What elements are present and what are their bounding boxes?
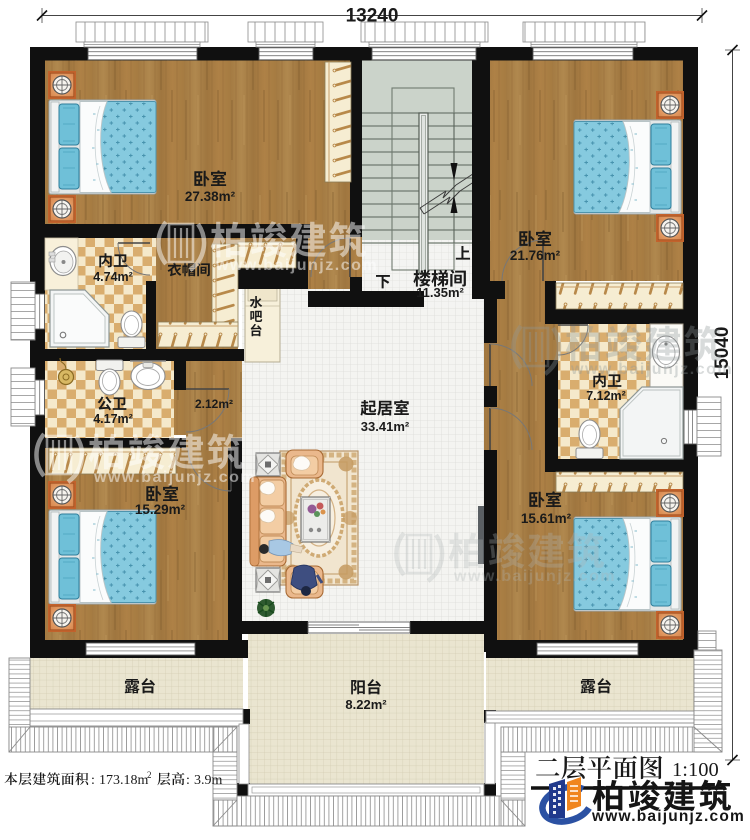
svg-text:4.17m²: 4.17m² — [93, 412, 133, 426]
svg-text:4.74m²: 4.74m² — [93, 270, 133, 284]
svg-text:11.35m²: 11.35m² — [416, 285, 464, 300]
svg-text:21.76m²: 21.76m² — [510, 248, 561, 263]
svg-text:15.61m²: 15.61m² — [521, 511, 572, 526]
svg-text:1:100: 1:100 — [672, 759, 719, 781]
svg-text:www.baijunjz.com: www.baijunjz.com — [453, 568, 616, 585]
svg-text:33.41m²: 33.41m² — [361, 419, 410, 434]
svg-text:www.baijunjz.com: www.baijunjz.com — [591, 808, 745, 825]
svg-text::: : — [186, 773, 190, 788]
svg-text:2.12m²: 2.12m² — [195, 397, 233, 411]
svg-text:8.22m²: 8.22m² — [345, 697, 387, 712]
svg-text:www.baijunjz.com: www.baijunjz.com — [215, 257, 378, 274]
svg-text:www.baijunjz.com: www.baijunjz.com — [570, 361, 733, 378]
svg-text:www.baijunjz.com: www.baijunjz.com — [93, 469, 256, 486]
svg-text:173.18m: 173.18m — [99, 773, 149, 788]
svg-text:15.29m²: 15.29m² — [135, 502, 186, 517]
svg-text:2: 2 — [147, 770, 152, 780]
svg-text:27.38m²: 27.38m² — [185, 189, 236, 204]
svg-text::: : — [91, 773, 95, 788]
svg-text:7.12m²: 7.12m² — [586, 389, 626, 403]
svg-text:3.9m: 3.9m — [194, 773, 223, 788]
